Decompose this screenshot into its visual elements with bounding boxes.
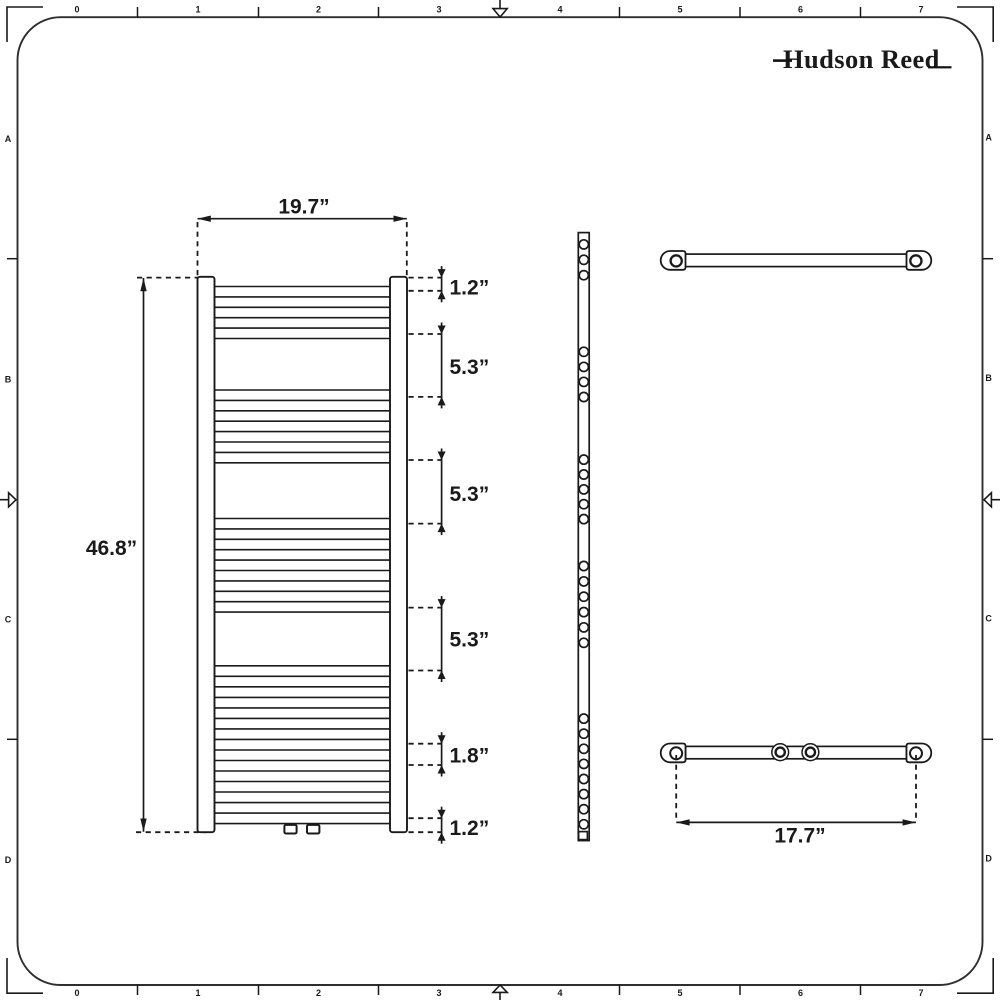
svg-text:A: A <box>5 134 12 144</box>
svg-text:Hudson Reed: Hudson Reed <box>783 44 940 74</box>
svg-text:46.8”: 46.8” <box>86 537 137 560</box>
svg-text:6: 6 <box>798 988 803 998</box>
svg-text:5: 5 <box>677 5 682 15</box>
svg-text:3: 3 <box>436 5 441 15</box>
svg-text:1: 1 <box>195 5 200 15</box>
svg-text:B: B <box>5 375 12 385</box>
svg-text:4: 4 <box>557 988 562 998</box>
svg-text:7: 7 <box>918 988 923 998</box>
svg-text:B: B <box>985 373 992 383</box>
svg-text:D: D <box>985 854 992 864</box>
svg-text:2: 2 <box>316 5 321 15</box>
svg-text:5: 5 <box>677 988 682 998</box>
svg-text:1.2”: 1.2” <box>450 277 490 300</box>
svg-text:1.2”: 1.2” <box>450 817 490 840</box>
svg-text:19.7”: 19.7” <box>278 196 329 219</box>
svg-text:A: A <box>985 133 992 143</box>
svg-text:5.3”: 5.3” <box>450 483 490 506</box>
svg-text:4: 4 <box>557 5 562 15</box>
svg-text:1: 1 <box>195 988 200 998</box>
svg-text:1.8”: 1.8” <box>450 744 490 767</box>
svg-text:C: C <box>985 614 992 624</box>
svg-text:3: 3 <box>436 988 441 998</box>
svg-text:7: 7 <box>918 5 923 15</box>
svg-text:C: C <box>5 615 12 625</box>
svg-text:2: 2 <box>316 988 321 998</box>
svg-text:5.3”: 5.3” <box>450 629 490 652</box>
svg-text:D: D <box>5 855 12 865</box>
svg-text:6: 6 <box>798 5 803 15</box>
svg-text:0: 0 <box>74 5 79 15</box>
svg-text:5.3”: 5.3” <box>450 356 490 379</box>
svg-text:0: 0 <box>74 988 79 998</box>
svg-text:17.7”: 17.7” <box>774 825 825 848</box>
